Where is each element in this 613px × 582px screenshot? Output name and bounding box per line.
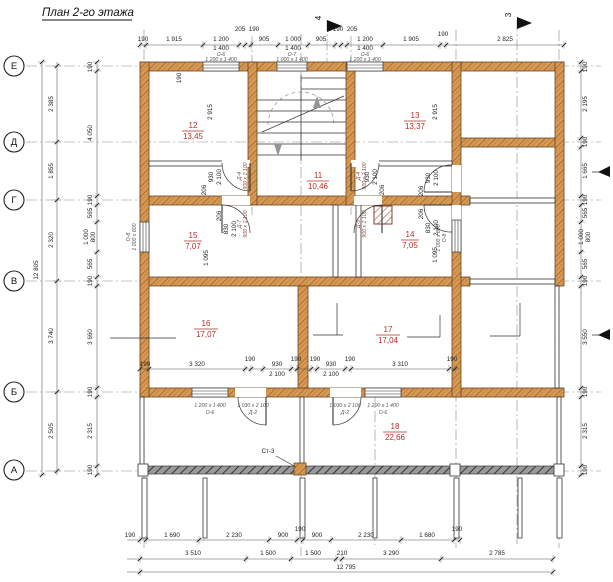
door-opening xyxy=(452,165,461,192)
dim-label: 190 xyxy=(87,464,94,475)
dim-label: 190 xyxy=(87,61,94,72)
door-opening xyxy=(354,196,382,205)
dim-label: 930 xyxy=(326,361,337,368)
dim-label: 900 xyxy=(278,532,289,539)
dim-label: 206 xyxy=(201,184,208,195)
window-o7-north xyxy=(277,62,307,71)
dim-label: 190 xyxy=(447,356,458,363)
wall-stair-west xyxy=(248,62,257,205)
dim-label: 1 200 xyxy=(357,36,373,43)
dim-label: 3 550 xyxy=(582,329,589,345)
dim-label: 1 000 xyxy=(83,229,90,245)
closet-line xyxy=(313,303,343,335)
drawing-title: План 2-го этажа xyxy=(42,7,134,19)
dim-label: 3 310 xyxy=(392,361,408,368)
dim-label: 2 100 xyxy=(433,220,440,236)
window-tag: 1 200 х 1 400 xyxy=(349,57,381,63)
closet-line xyxy=(407,315,440,337)
dim-label: 190 xyxy=(582,275,589,286)
dim-label: 190 xyxy=(310,356,321,363)
axis-label-b: Б xyxy=(11,387,17,398)
room-number: 11 xyxy=(314,171,323,180)
porch-post xyxy=(450,464,460,476)
room-area: 7,07 xyxy=(185,242,201,251)
door-opening xyxy=(330,388,361,397)
dim-label: 190 xyxy=(138,36,149,43)
dim-label: 1 665 xyxy=(582,163,589,179)
dim-label: 2 100 xyxy=(323,371,339,378)
porch-column xyxy=(373,478,377,538)
dim-label: 2 785 xyxy=(489,550,505,557)
section-label-3: 3 xyxy=(504,12,513,17)
section-flag-3 xyxy=(517,17,532,29)
dim-label: 905 xyxy=(316,36,327,43)
dim-label: 1 095 xyxy=(432,247,439,263)
door-tag: 900 х 2 100 xyxy=(243,162,249,189)
door-tag: 900 х 2 100 xyxy=(362,162,368,189)
room-area: 7,05 xyxy=(402,241,418,250)
dim-label: 12 805 xyxy=(33,260,40,280)
dim-label: 2 100 xyxy=(216,169,223,185)
dim-label: 2 915 xyxy=(207,104,214,120)
section-mark xyxy=(598,166,610,177)
axis-label-e: Е xyxy=(11,61,17,72)
section-label-4: 4 xyxy=(314,15,323,20)
window-tag: 1 000 х 1 400 xyxy=(276,57,308,63)
door-tag: Д-2 xyxy=(248,410,257,416)
dim-label: 3 660 xyxy=(87,329,94,345)
stair-arrow-down xyxy=(274,144,282,156)
partition-bay-g xyxy=(470,198,555,203)
axis-label-g: Г xyxy=(11,195,16,206)
dim-label: 2 100 xyxy=(372,169,379,185)
post-tag: Ст-3 xyxy=(261,448,275,455)
dim-label: 190 xyxy=(87,275,94,286)
dim-label: 930 xyxy=(208,171,215,182)
dim-label: 2 195 xyxy=(582,96,589,112)
dim-label: 4 050 xyxy=(87,125,94,141)
porch-post xyxy=(138,464,148,476)
dim-label: 565 xyxy=(582,258,589,269)
dim-label: 1 905 xyxy=(403,36,419,43)
dim-label: 2 915 xyxy=(432,104,439,120)
partition-room15-east xyxy=(333,205,338,277)
window-tag: 1 000 х 800 xyxy=(132,223,138,250)
window-o6-north-2 xyxy=(347,62,383,71)
door-tag: 900 х 2 100 xyxy=(243,210,249,237)
terrace-wall-west xyxy=(140,397,144,466)
dim-label: 206 xyxy=(379,184,386,195)
wall-v xyxy=(140,277,470,286)
dim-label: 3 740 xyxy=(48,328,55,344)
wall-d-east xyxy=(452,138,564,147)
dim-label: 190 xyxy=(582,464,589,475)
dim-label: 830 xyxy=(425,222,432,233)
axis-label-a: А xyxy=(11,465,18,476)
dim-label: 2 100 xyxy=(269,371,285,378)
section-mark xyxy=(598,329,610,340)
dim-label: 190 xyxy=(345,356,356,363)
dim-label: 206 xyxy=(418,208,425,219)
porch-column xyxy=(557,478,562,538)
dim-label: 2 825 xyxy=(497,36,513,43)
plan-layers: План 2-го этажаЕДГВБА1901 9151 2001 4002… xyxy=(4,7,610,576)
dim-label: 1 400 xyxy=(285,45,301,52)
window-o8-east xyxy=(452,220,461,252)
dim-label: 190 xyxy=(249,26,260,33)
dim-label: 3 320 xyxy=(189,361,205,368)
porch-post-st3 xyxy=(294,463,306,475)
window-o6-south-2 xyxy=(365,388,401,397)
window-o6-north-1 xyxy=(203,62,239,71)
dim-label: 800 xyxy=(90,231,97,242)
dim-label: 1 915 xyxy=(166,36,182,43)
room-number: 18 xyxy=(391,422,400,431)
porch-wall-a xyxy=(140,466,564,474)
dim-label: 565 xyxy=(87,207,94,218)
dim-label: 2 505 xyxy=(48,423,55,439)
chimney-flue xyxy=(374,206,392,224)
dim-label: 2 315 xyxy=(87,423,94,439)
dim-label: 190 xyxy=(438,31,449,38)
window-tag: 1 200 х 1 400 xyxy=(205,57,237,63)
room-area: 10,46 xyxy=(308,182,329,191)
dim-label: 1 400 xyxy=(213,45,229,52)
dim-label: 1 000 xyxy=(578,229,585,245)
dim-label: 205 xyxy=(235,26,246,33)
wall-center-south xyxy=(298,286,308,388)
porch-post xyxy=(554,464,564,476)
dim-label: 1 690 xyxy=(164,532,180,539)
room-area: 17,07 xyxy=(196,330,217,339)
dim-label: 1 000 xyxy=(285,36,301,43)
dim-label: 210 xyxy=(337,550,348,557)
window-tag: 1 200 х 1 400 xyxy=(194,403,226,409)
floor-plan-drawing: План 2-го этажаЕДГВБА1901 9151 2001 4002… xyxy=(0,0,613,582)
room-area: 22,66 xyxy=(385,433,406,442)
room18-wall-east xyxy=(557,397,561,466)
dim-label: 190 xyxy=(295,526,306,533)
room-number: 13 xyxy=(411,111,420,120)
dim-label: 1 680 xyxy=(419,532,435,539)
porch-column xyxy=(203,478,207,538)
room-area: 13,45 xyxy=(183,132,204,141)
door-opening xyxy=(235,388,266,397)
room-area: 17,04 xyxy=(378,336,399,345)
dim-label: 2 385 xyxy=(48,96,55,112)
post-leader xyxy=(276,456,296,467)
dim-label: 3 290 xyxy=(383,550,399,557)
window-o6-south-1 xyxy=(192,388,228,397)
door-opening xyxy=(222,196,250,205)
dim-label: 905 xyxy=(259,36,270,43)
room18-wall-west xyxy=(300,397,304,466)
window-tag: О-8 xyxy=(442,234,448,243)
dim-label: 930 xyxy=(425,172,432,183)
dim-label: 190 xyxy=(582,194,589,205)
dim-label: 565 xyxy=(87,258,94,269)
wall-g xyxy=(140,196,470,205)
dim-label: 206 xyxy=(418,185,425,196)
room-number: 14 xyxy=(406,230,415,239)
dim-label: 1 095 xyxy=(203,250,210,266)
dim-label: 1 400 xyxy=(357,45,373,52)
axis-label-d: Д xyxy=(11,137,18,148)
room-number: 12 xyxy=(189,121,198,130)
dim-label: 190 xyxy=(452,526,463,533)
dim-label: 2 320 xyxy=(48,232,55,248)
door-tag: 1 030 х 2 100 xyxy=(329,403,361,409)
dim-label: 190 xyxy=(291,356,302,363)
dim-label: 930 xyxy=(272,361,283,368)
dim-label: 2 315 xyxy=(582,423,589,439)
dim-label: 900 xyxy=(312,532,323,539)
dim-label: 565 xyxy=(582,207,589,218)
dim-label: 190 xyxy=(582,386,589,397)
dim-label: 830 xyxy=(223,223,230,234)
dim-label: 190 xyxy=(176,72,183,83)
dim-label: 190 xyxy=(87,194,94,205)
wall-exterior-east-bay xyxy=(555,62,564,286)
dim-label: 2 100 xyxy=(433,170,440,186)
window-tag: О-6 xyxy=(206,410,215,416)
dim-label: 1 200 xyxy=(213,36,229,43)
axis-label-v: В xyxy=(11,276,17,287)
dim-label: 190 xyxy=(245,356,256,363)
dim-label: 205 xyxy=(347,26,358,33)
terrace-corner-mark xyxy=(490,303,520,336)
terrace-wall-east xyxy=(555,286,559,388)
dim-label: 190 xyxy=(87,386,94,397)
floor-plan-page: План 2-го этажаЕДГВБА1901 9151 2001 4002… xyxy=(0,0,613,582)
door-tag: Д-2 xyxy=(340,410,349,416)
dim-label: 12 795 xyxy=(336,564,356,571)
dim-label: 2 230 xyxy=(358,532,374,539)
dim-label: 1 855 xyxy=(48,163,55,179)
dim-label: 190 xyxy=(582,136,589,147)
dim-label: 190 xyxy=(582,61,589,72)
dim-label: 2 230 xyxy=(226,532,242,539)
door-tag: 900 х 2 100 xyxy=(362,210,368,237)
window-tag: О-6 xyxy=(379,410,388,416)
dim-label: 800 xyxy=(585,231,592,242)
dim-label: 3 510 xyxy=(185,550,201,557)
room-number: 16 xyxy=(202,319,211,328)
dim-label: 190 xyxy=(125,532,136,539)
door-tag: 1 030 х 2 100 xyxy=(237,403,269,409)
window-o8-west xyxy=(140,222,149,252)
stair-break-line xyxy=(262,96,344,132)
window-tag: 1 200 х 1 400 xyxy=(367,403,399,409)
room-number: 15 xyxy=(189,231,198,240)
partition-bay-v xyxy=(470,279,555,284)
room-number: 17 xyxy=(384,325,393,334)
room-area: 13,37 xyxy=(405,122,426,131)
dim-label: 190 xyxy=(140,361,151,368)
porch-column xyxy=(518,478,522,538)
dim-label: 1 500 xyxy=(305,550,321,557)
porch-column xyxy=(142,478,147,538)
dim-label: 1 500 xyxy=(260,550,276,557)
dim-label: 206 xyxy=(216,210,223,221)
stair-treads-right xyxy=(301,78,346,155)
